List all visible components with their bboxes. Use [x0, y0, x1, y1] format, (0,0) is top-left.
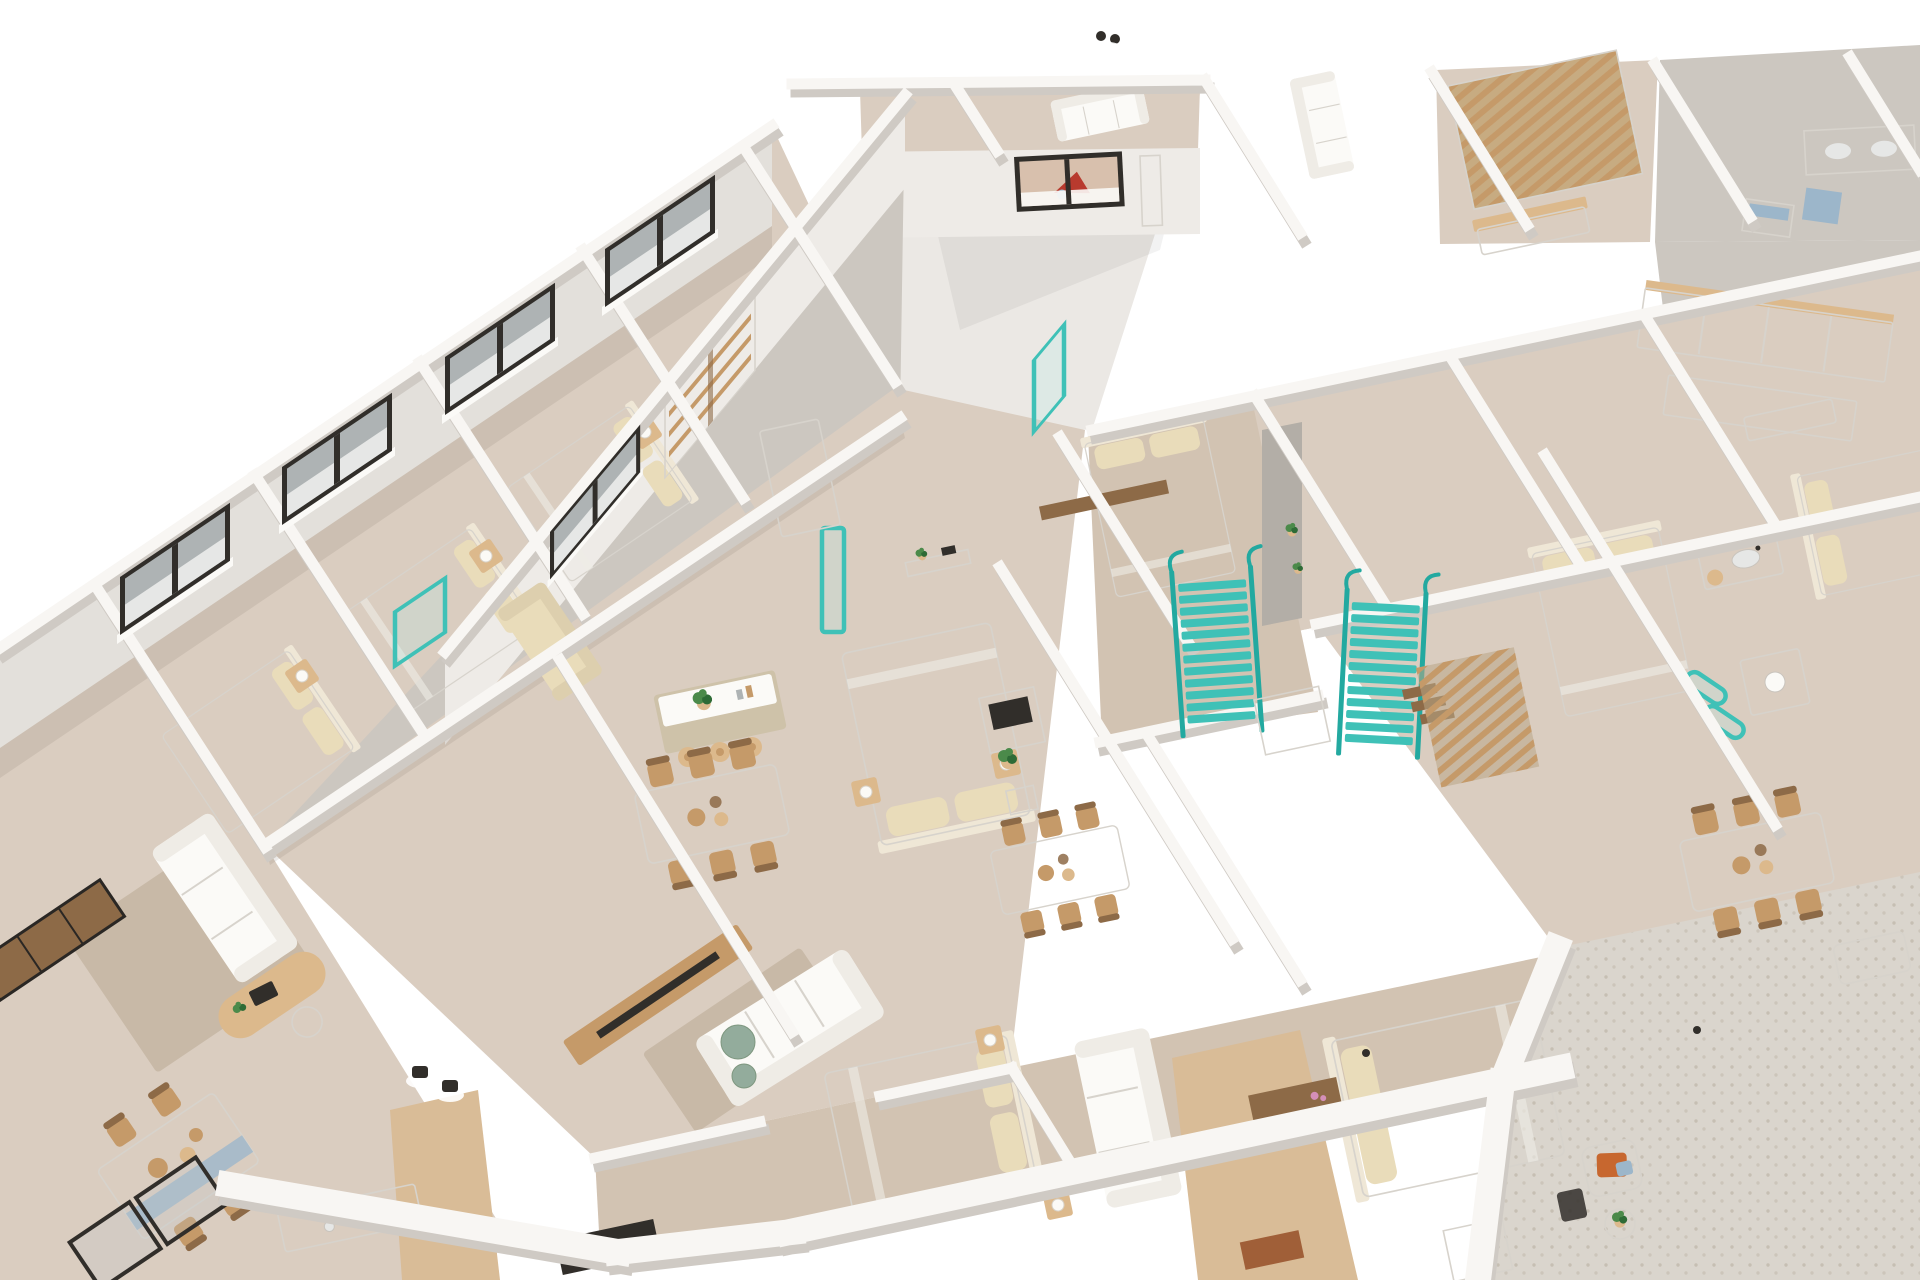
floor-plan-render: 3D axonometric cutaway rendering of a re… [0, 0, 1920, 1280]
coffee-table [721, 1025, 755, 1059]
coffee-table [732, 1064, 756, 1088]
nightstand-lamp [975, 1025, 1006, 1056]
floor-plan-render-stage: 3D axonometric cutaway rendering of a re… [0, 0, 1920, 1280]
wall-light [1693, 1026, 1701, 1034]
wall-light [1362, 1049, 1370, 1057]
interior-window [1014, 151, 1125, 212]
teal-door-frame [822, 528, 844, 632]
blue-cabinet [1802, 188, 1842, 225]
nightstand-lamp [851, 777, 882, 808]
bar-stool [710, 742, 730, 762]
